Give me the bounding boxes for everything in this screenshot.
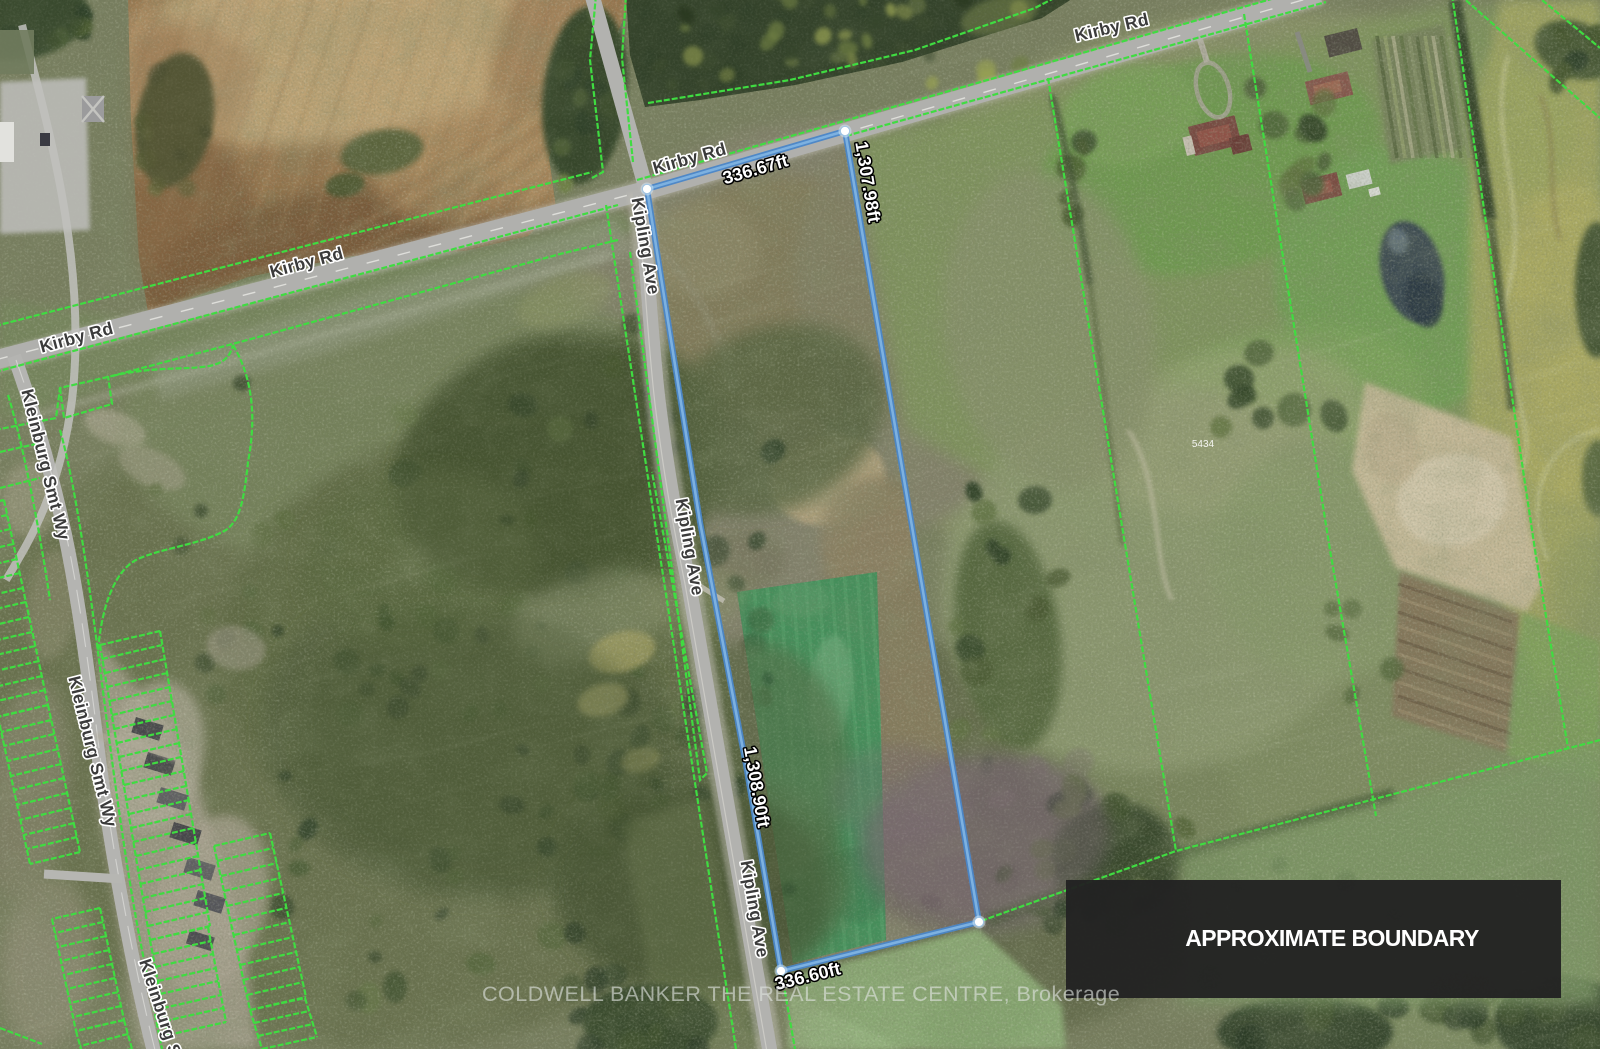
svg-text:COLDWELL BANKER THE REAL ESTAT: COLDWELL BANKER THE REAL ESTATE CENTRE, … xyxy=(482,982,1120,1006)
svg-text:APPROXIMATE BOUNDARY: APPROXIMATE BOUNDARY xyxy=(1185,925,1479,951)
svg-text:5434: 5434 xyxy=(1192,439,1215,450)
